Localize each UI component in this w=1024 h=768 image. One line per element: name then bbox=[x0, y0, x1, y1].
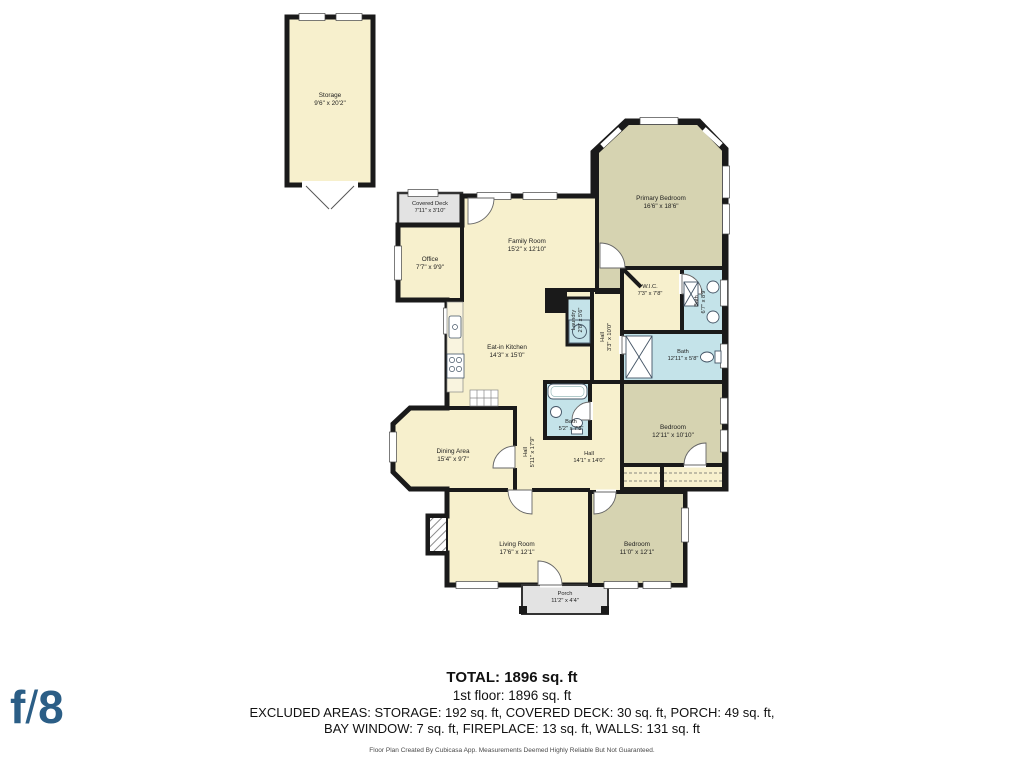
room-dims: 15'2" x 12'10" bbox=[508, 246, 547, 254]
room-label-lower-bedroom: Bedroom 11'0" x 12'1" bbox=[620, 541, 655, 557]
room-label-laundry: Laundry 2'8" x 5'6" bbox=[571, 308, 585, 333]
floor-plan-drawing bbox=[0, 0, 1024, 768]
room-name: Eat-in Kitchen bbox=[487, 344, 527, 352]
room-dims: 11'0" x 12'1" bbox=[620, 549, 655, 557]
room-dims: 11'2" x 4'4" bbox=[551, 598, 579, 605]
room-dims: 14'1" x 14'0" bbox=[573, 458, 604, 465]
room-name: Bath bbox=[668, 349, 699, 356]
room-label-office: Office 7'7" x 9'9" bbox=[416, 256, 444, 272]
room-name: Office bbox=[416, 256, 444, 264]
room-label-wic: W.I.C. 7'3" x 7'8" bbox=[638, 284, 663, 298]
room-dims: 12'11" x 10'10" bbox=[652, 432, 694, 440]
room-name: Storage bbox=[314, 92, 346, 100]
f8-logo: f/8 bbox=[10, 684, 63, 730]
room-label-primary-bedroom: Primary Bedroom 16'6" x 18'6" bbox=[636, 195, 686, 211]
fireplace-icon bbox=[545, 290, 567, 313]
room-dims: 7'11" x 3'10" bbox=[412, 208, 448, 215]
excluded-areas-line1: EXCLUDED AREAS: STORAGE: 192 sq. ft, COV… bbox=[0, 705, 1024, 720]
room-name: Family Room bbox=[508, 238, 547, 246]
first-floor-area-text: 1st floor: 1896 sq. ft bbox=[0, 688, 1024, 703]
logo-letter-8: 8 bbox=[38, 681, 63, 733]
room-name: Bedroom bbox=[620, 541, 655, 549]
room-name: Hall bbox=[600, 323, 607, 351]
area-summary: TOTAL: 1896 sq. ft 1st floor: 1896 sq. f… bbox=[0, 669, 1024, 737]
room-label-hall-upper: Hall 3'3" x 10'0" bbox=[600, 323, 614, 351]
room-name: Covered Deck bbox=[412, 201, 448, 208]
closet-strip bbox=[622, 465, 724, 489]
disclaimer-text: Floor Plan Created By Cubicasa App. Meas… bbox=[0, 747, 1024, 754]
room-dims: 5'2" x 7'8" bbox=[559, 426, 584, 433]
room-name: Laundry bbox=[571, 308, 578, 333]
room-dims: 17'6" x 12'1" bbox=[499, 549, 535, 557]
room-dims: 9'6" x 20'2" bbox=[314, 100, 346, 108]
room-dims: 14'3" x 15'0" bbox=[487, 352, 527, 360]
exterior-fireplace-icon bbox=[429, 517, 447, 552]
room-label-center-bath: Bath 5'2" x 7'8" bbox=[559, 419, 584, 433]
room-label-kitchen: Eat-in Kitchen 14'3" x 15'0" bbox=[487, 344, 527, 360]
room-label-mid-bedroom: Bedroom 12'11" x 10'10" bbox=[652, 424, 694, 440]
stove-icon bbox=[447, 354, 464, 378]
room-name: Hall bbox=[573, 451, 604, 458]
room-label-dining: Dining Area 15'4" x 9'7" bbox=[436, 448, 469, 464]
room-name: Bedroom bbox=[652, 424, 694, 432]
room-label-hall-lower: Hall 14'1" x 14'0" bbox=[573, 451, 604, 465]
room-name: Living Room bbox=[499, 541, 535, 549]
floor-plan-page: Storage 9'6" x 20'2" Covered Deck 7'11" … bbox=[0, 0, 1024, 768]
room-name: W.I.C. bbox=[638, 284, 663, 291]
room-label-living-room: Living Room 17'6" x 12'1" bbox=[499, 541, 535, 557]
logo-slash: / bbox=[24, 681, 38, 733]
room-label-storage: Storage 9'6" x 20'2" bbox=[314, 92, 346, 108]
kitchen-counter bbox=[447, 302, 463, 392]
room-label-porch: Porch 11'2" x 4'4" bbox=[551, 591, 579, 605]
room-label-covered-deck: Covered Deck 7'11" x 3'10" bbox=[412, 201, 448, 215]
bathtub-icon bbox=[548, 384, 587, 399]
room-dims: 2'8" x 5'6" bbox=[578, 308, 585, 333]
room-name: Dining Area bbox=[436, 448, 469, 456]
total-area-text: TOTAL: 1896 sq. ft bbox=[0, 669, 1024, 686]
room-dims: 3'3" x 10'0" bbox=[607, 323, 614, 351]
room-dims: 16'6" x 18'6" bbox=[636, 203, 686, 211]
room-name: Porch bbox=[551, 591, 579, 598]
room-label-hall-bath: Bath 12'11" x 5'8" bbox=[668, 349, 699, 363]
room-label-hall-mid: Hall 5'11" x 17'9" bbox=[523, 437, 537, 468]
room-label-primary-bath: Bath 6'7" x 8'9" bbox=[694, 289, 708, 314]
room-dims: 6'7" x 8'9" bbox=[701, 289, 708, 314]
room-dims: 15'4" x 9'7" bbox=[436, 456, 469, 464]
room-dims: 5'11" x 17'9" bbox=[530, 437, 537, 468]
logo-letter-f: f bbox=[10, 681, 24, 733]
room-dims: 7'7" x 9'9" bbox=[416, 264, 444, 272]
storage-building bbox=[287, 14, 373, 210]
kitchen-table bbox=[470, 390, 498, 406]
room-name: Bath bbox=[694, 289, 701, 314]
room-dims: 12'11" x 5'8" bbox=[668, 356, 699, 363]
room-dims: 7'3" x 7'8" bbox=[638, 291, 663, 298]
room-name: Bath bbox=[559, 419, 584, 426]
room-name: Hall bbox=[523, 437, 530, 468]
excluded-areas-line2: BAY WINDOW: 7 sq. ft, FIREPLACE: 13 sq. … bbox=[0, 721, 1024, 736]
room-label-family-room: Family Room 15'2" x 12'10" bbox=[508, 238, 547, 254]
room-name: Primary Bedroom bbox=[636, 195, 686, 203]
